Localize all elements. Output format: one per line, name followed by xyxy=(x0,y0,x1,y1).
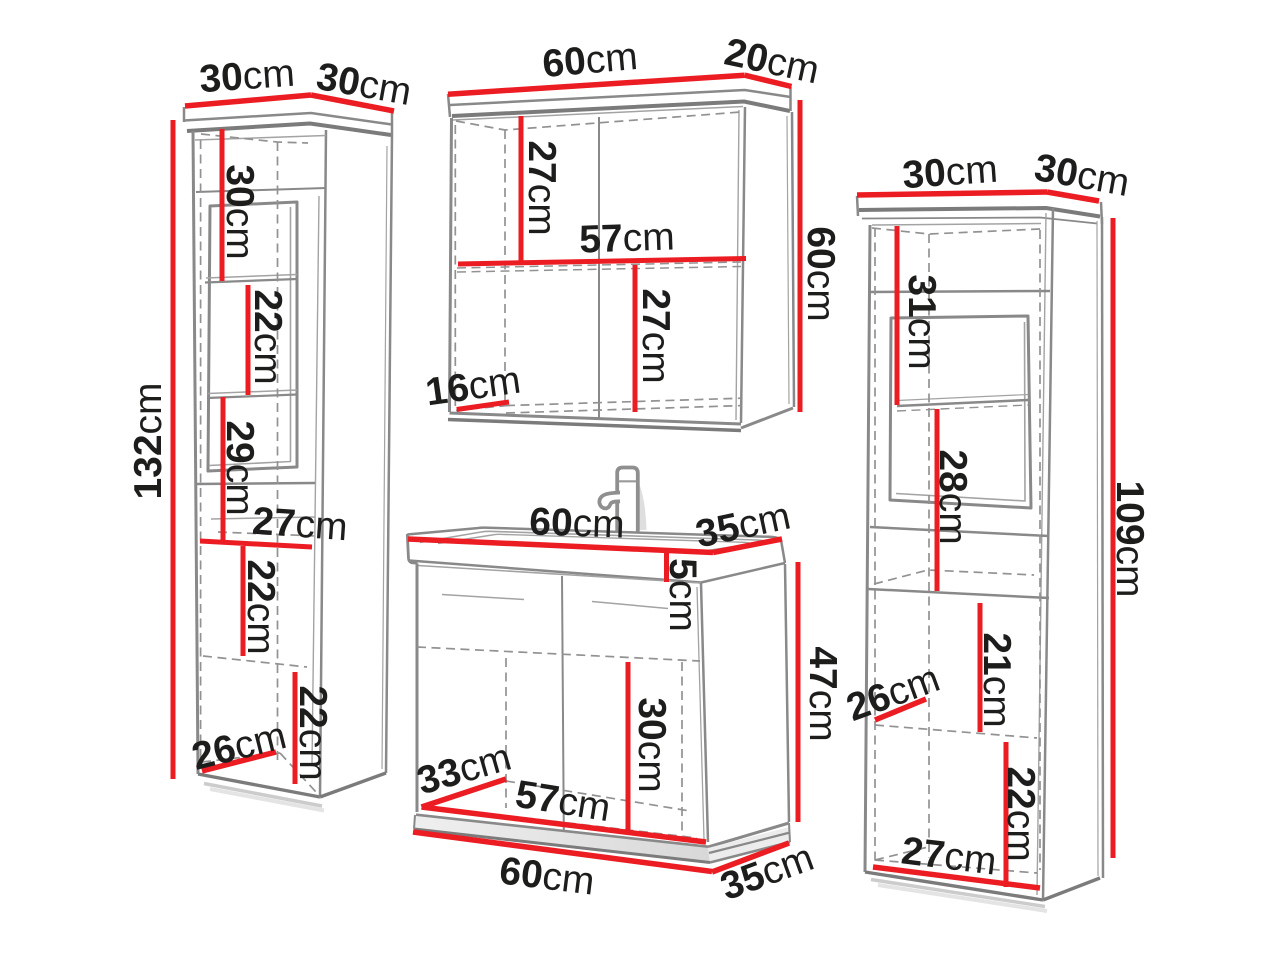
svg-text:109cm: 109cm xyxy=(1109,480,1152,597)
svg-text:5cm: 5cm xyxy=(662,558,705,632)
svg-text:22cm: 22cm xyxy=(292,685,335,780)
svg-text:31cm: 31cm xyxy=(901,274,944,369)
svg-text:22cm: 22cm xyxy=(1000,766,1043,861)
svg-text:30cm: 30cm xyxy=(198,51,296,101)
svg-text:60cm: 60cm xyxy=(800,226,843,321)
svg-text:27cm: 27cm xyxy=(521,140,564,235)
svg-text:22cm: 22cm xyxy=(247,289,290,384)
svg-text:60cm: 60cm xyxy=(541,34,640,85)
svg-text:57cm: 57cm xyxy=(579,215,676,261)
svg-text:132cm: 132cm xyxy=(127,382,170,499)
svg-text:60cm: 60cm xyxy=(529,500,626,546)
svg-text:27cm: 27cm xyxy=(251,499,349,549)
svg-text:47cm: 47cm xyxy=(802,646,845,741)
svg-text:21cm: 21cm xyxy=(976,632,1019,727)
svg-text:28cm: 28cm xyxy=(932,449,975,544)
svg-text:30cm: 30cm xyxy=(219,164,262,259)
svg-text:30cm: 30cm xyxy=(631,697,674,792)
svg-text:22cm: 22cm xyxy=(240,559,283,654)
svg-text:30cm: 30cm xyxy=(901,147,999,197)
svg-text:27cm: 27cm xyxy=(635,288,678,383)
